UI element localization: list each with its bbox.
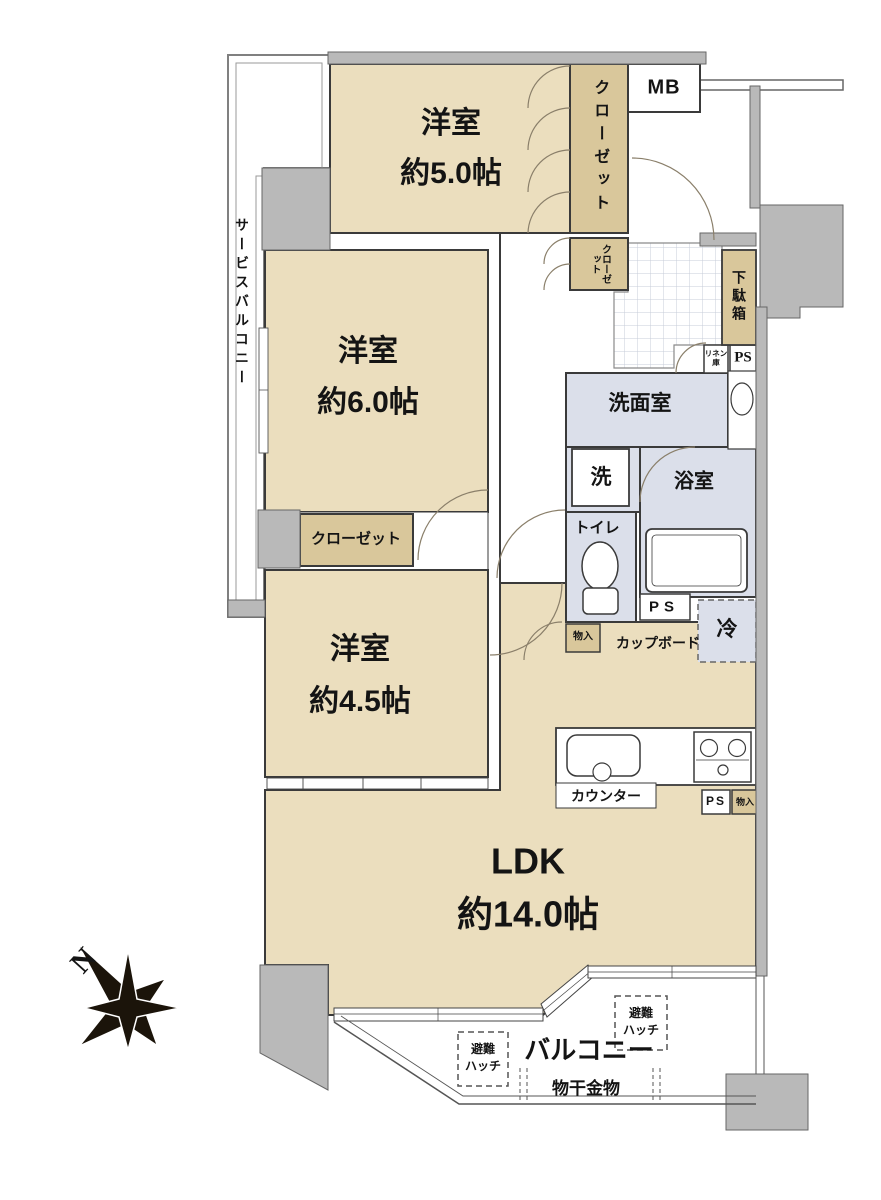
pillar-bottom-right bbox=[726, 1074, 808, 1130]
escape-hatch-2-label: 避難 ハッチ bbox=[623, 1005, 659, 1039]
room-bedroom-a bbox=[330, 64, 570, 233]
bedroom-b-area: 約6.0帖 bbox=[317, 386, 419, 421]
pillar-upper-left bbox=[262, 168, 330, 250]
ldk-name: LDK bbox=[491, 840, 565, 881]
linen-cabinet-label: リネン 庫 bbox=[705, 349, 728, 367]
washer-label: 洗 bbox=[591, 466, 612, 490]
hatch1-line2: ハッチ bbox=[465, 1058, 501, 1075]
fridge-label: 冷 bbox=[717, 618, 738, 642]
compass-rose bbox=[29, 914, 196, 1084]
hatch1-line1: 避難 bbox=[465, 1041, 501, 1058]
hatch2-line1: 避難 bbox=[623, 1005, 659, 1022]
room-bedroom-b bbox=[265, 250, 488, 512]
closet-bedroom-a-label: クローゼット bbox=[590, 79, 608, 217]
partition-bedroom-c bbox=[267, 778, 488, 789]
bedroom-a-name: 洋室 bbox=[421, 107, 481, 142]
pipe-space-kitchen-label: PS bbox=[706, 795, 726, 809]
washroom-door-arc bbox=[676, 343, 706, 373]
wall-right bbox=[756, 307, 767, 976]
closet-bedroom-b-label: クローゼット bbox=[311, 530, 401, 547]
bedroom-a-area: 約5.0帖 bbox=[400, 157, 502, 192]
vanity-basin bbox=[731, 383, 753, 415]
wall-closet-left bbox=[258, 510, 300, 568]
linen-line2: 庫 bbox=[705, 358, 728, 367]
washroom-label: 洗面室 bbox=[609, 392, 672, 416]
pipe-space-entry-label: PS bbox=[734, 349, 752, 366]
shoe-cabinet-label: 下駄箱 bbox=[731, 270, 747, 324]
wall-top bbox=[328, 52, 706, 64]
pillar-top-right bbox=[760, 205, 843, 318]
pipe-space-bath-label: PS bbox=[649, 598, 679, 615]
linen-line1: リネン bbox=[705, 349, 728, 358]
wall-entry bbox=[700, 233, 756, 246]
window-bedroom-b bbox=[259, 328, 268, 453]
bathtub bbox=[646, 529, 747, 592]
bedroom-c-name: 洋室 bbox=[330, 633, 390, 668]
room-bedroom-c bbox=[265, 570, 488, 777]
toilet-label: トイレ bbox=[574, 519, 619, 536]
balcony-label: バルコニー bbox=[524, 1036, 653, 1066]
laundry-hardware-label: 物干金物 bbox=[552, 1079, 620, 1099]
bedroom-c-area: 約4.5帖 bbox=[309, 685, 411, 720]
service-balcony-label: サービスバルコニー bbox=[234, 218, 250, 389]
window-ldk-left bbox=[334, 1008, 543, 1021]
cupboard-label: カップボード bbox=[616, 635, 700, 651]
storage-hall-label: 物入 bbox=[573, 631, 593, 643]
ldk-area: 約14.0帖 bbox=[457, 893, 599, 934]
floor-plan: 洋室 約5.0帖 クローゼット クローゼット MB 下駄箱 リネン 庫 PS サ… bbox=[0, 0, 881, 1200]
entry-door-arc bbox=[632, 158, 714, 240]
counter-label: カウンター bbox=[571, 788, 641, 804]
bathroom-label: 浴室 bbox=[674, 471, 714, 494]
bedroom-b-name: 洋室 bbox=[338, 335, 398, 370]
escape-hatch-1-label: 避難 ハッチ bbox=[465, 1041, 501, 1075]
wall-entry-right bbox=[750, 86, 760, 208]
storage-kitchen-label: 物入 bbox=[736, 797, 754, 807]
corridor-rail bbox=[700, 80, 843, 90]
closet-entry-small-label: クローゼット bbox=[589, 242, 610, 286]
pillar-bottom-left bbox=[260, 965, 328, 1090]
toilet-door-arc bbox=[497, 510, 565, 578]
balcony-rail-right bbox=[756, 976, 764, 1074]
toilet-fixture bbox=[582, 542, 618, 590]
meter-box-label: MB bbox=[647, 77, 680, 100]
wall-service-balcony-end bbox=[228, 600, 265, 617]
